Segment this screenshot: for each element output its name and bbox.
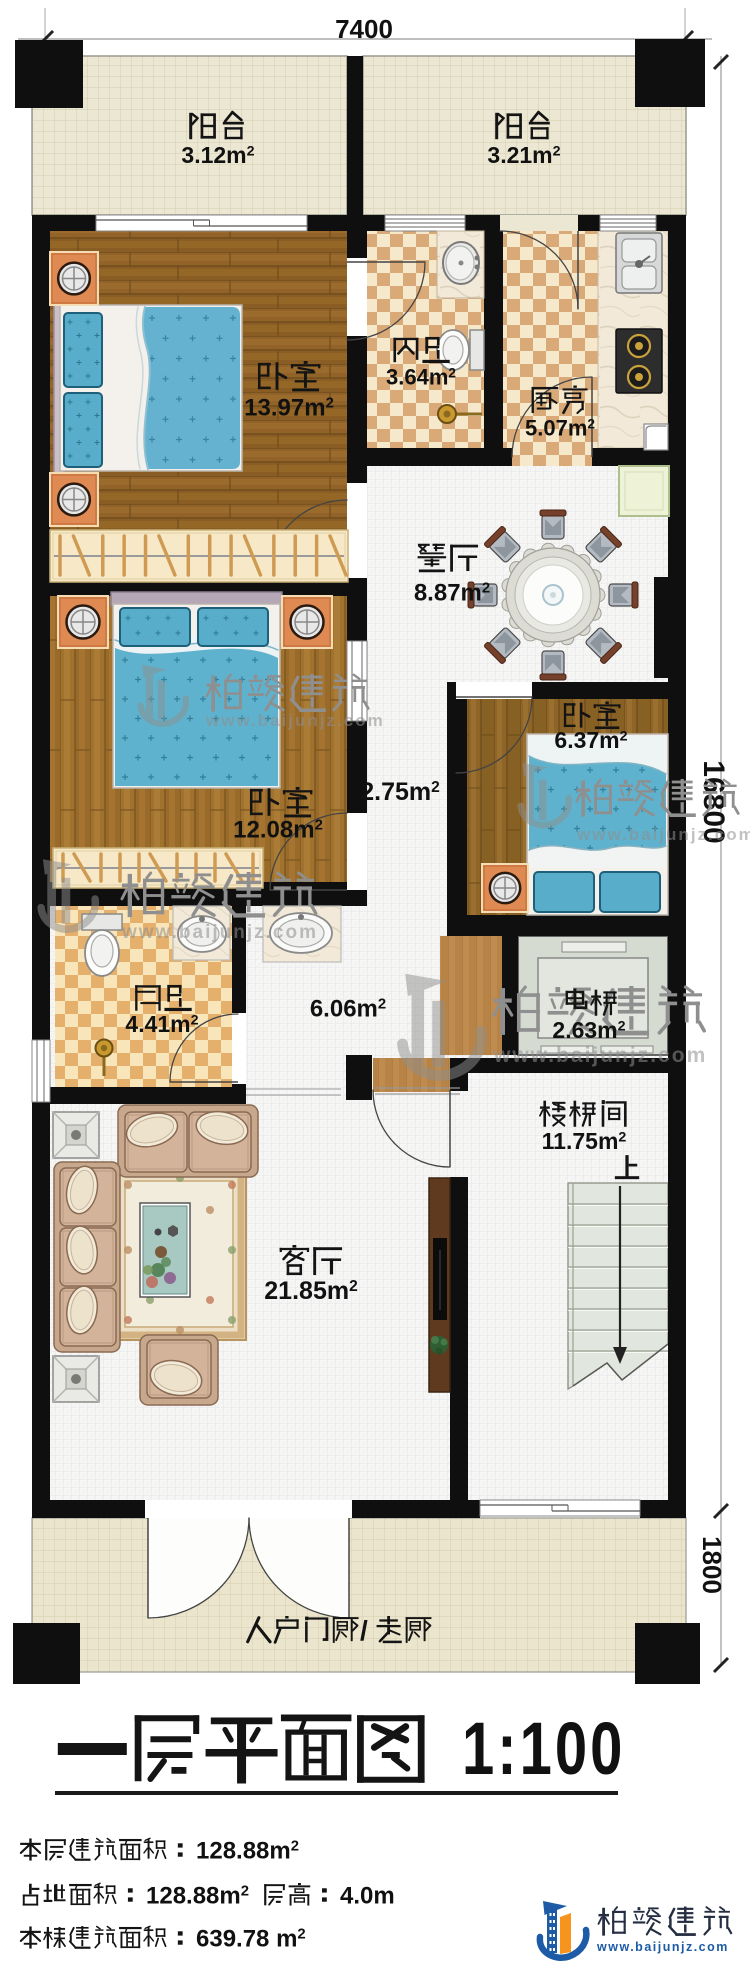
svg-text:/: / [360,1615,368,1646]
svg-text:2.75m2: 2.75m2 [360,778,440,806]
svg-text:www.baijunjz.com: www.baijunjz.com [576,825,750,844]
svg-text:www.baijunjz.com: www.baijunjz.com [493,1044,707,1067]
svg-text:21.85m2: 21.85m2 [264,1277,357,1305]
svg-text:4.41m2: 4.41m2 [125,1011,198,1037]
svg-text:1:100: 1:100 [462,1708,625,1790]
svg-text:3.21m2: 3.21m2 [487,142,560,168]
svg-text:2.63m2: 2.63m2 [552,1017,625,1043]
svg-text:128.88m2: 128.88m2 [196,1837,299,1864]
svg-text:639.78 m2: 639.78 m2 [196,1925,306,1952]
svg-text:3.12m2: 3.12m2 [181,142,254,168]
svg-text:www.baijunjz.com: www.baijunjz.com [596,1940,729,1954]
svg-text:128.88m2: 128.88m2 [146,1882,249,1909]
svg-text:12.08m2: 12.08m2 [233,816,323,843]
svg-text:13.97m2: 13.97m2 [244,394,334,421]
svg-text:8.87m2: 8.87m2 [414,579,490,606]
svg-text:6.37m2: 6.37m2 [554,727,627,753]
svg-text:www.baijunjz.com: www.baijunjz.com [121,922,318,943]
svg-text:1800: 1800 [697,1536,727,1594]
svg-text:3.64m2: 3.64m2 [386,365,456,390]
svg-text:5.07m2: 5.07m2 [525,416,595,441]
svg-text:4.0m: 4.0m [340,1882,395,1909]
svg-text:www.baijunjz.com: www.baijunjz.com [205,711,385,730]
svg-text:6.06m2: 6.06m2 [310,995,386,1022]
svg-text:7400: 7400 [335,14,393,44]
svg-text:11.75m2: 11.75m2 [542,1128,627,1154]
